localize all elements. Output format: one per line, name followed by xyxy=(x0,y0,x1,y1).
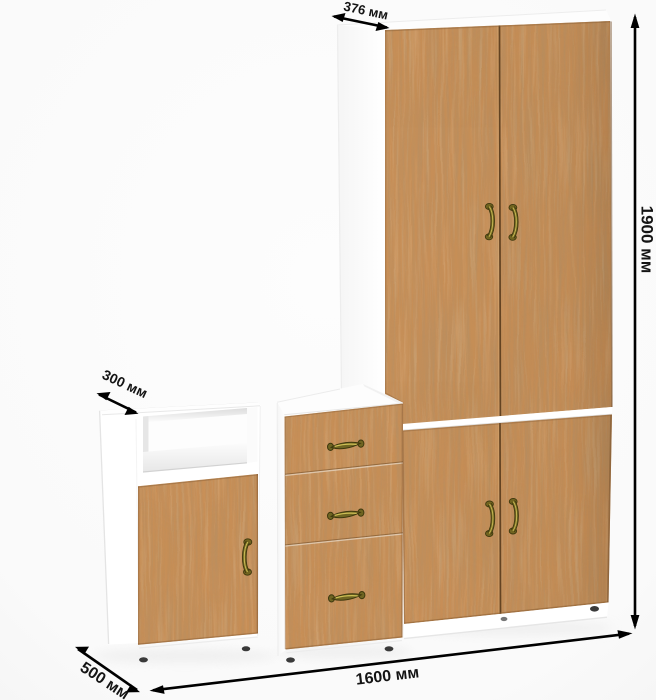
svg-text:1900 мм: 1900 мм xyxy=(638,206,656,274)
